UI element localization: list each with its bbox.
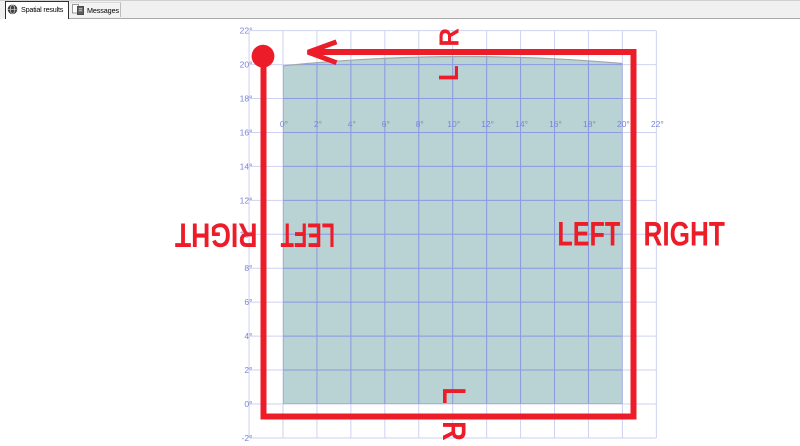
svg-text:0°: 0°: [280, 119, 288, 129]
svg-text:14°: 14°: [515, 119, 528, 129]
svg-text:RIGHT: RIGHT: [175, 216, 258, 254]
svg-text:4°: 4°: [244, 331, 252, 341]
svg-text:L: L: [433, 65, 464, 81]
svg-text:8°: 8°: [416, 119, 424, 129]
svg-text:6°: 6°: [382, 119, 390, 129]
svg-text:18°: 18°: [583, 119, 596, 129]
svg-text:16°: 16°: [549, 119, 562, 129]
svg-text:16°: 16°: [240, 127, 253, 137]
svg-text:0°: 0°: [244, 399, 252, 409]
svg-text:L: L: [435, 387, 471, 404]
svg-text:12°: 12°: [481, 119, 494, 129]
svg-text:20°: 20°: [240, 60, 253, 70]
svg-text:4°: 4°: [348, 119, 356, 129]
svg-text:18°: 18°: [240, 94, 253, 104]
svg-text:22°: 22°: [240, 26, 253, 36]
svg-text:10°: 10°: [447, 119, 460, 129]
svg-text:LEFT: LEFT: [557, 216, 620, 254]
svg-text:2°: 2°: [244, 365, 252, 375]
svg-text:14°: 14°: [240, 161, 253, 171]
svg-text:22°: 22°: [651, 119, 664, 129]
svg-text:8°: 8°: [244, 263, 252, 273]
svg-text:R: R: [434, 28, 465, 47]
svg-text:12°: 12°: [240, 195, 253, 205]
svg-text:-2°: -2°: [242, 433, 253, 443]
svg-text:20°: 20°: [617, 119, 630, 129]
svg-text:RIGHT: RIGHT: [643, 216, 725, 253]
svg-text:LEFT: LEFT: [280, 215, 335, 253]
svg-text:6°: 6°: [244, 297, 252, 307]
svg-text:R: R: [435, 421, 471, 441]
svg-text:2°: 2°: [314, 119, 322, 129]
